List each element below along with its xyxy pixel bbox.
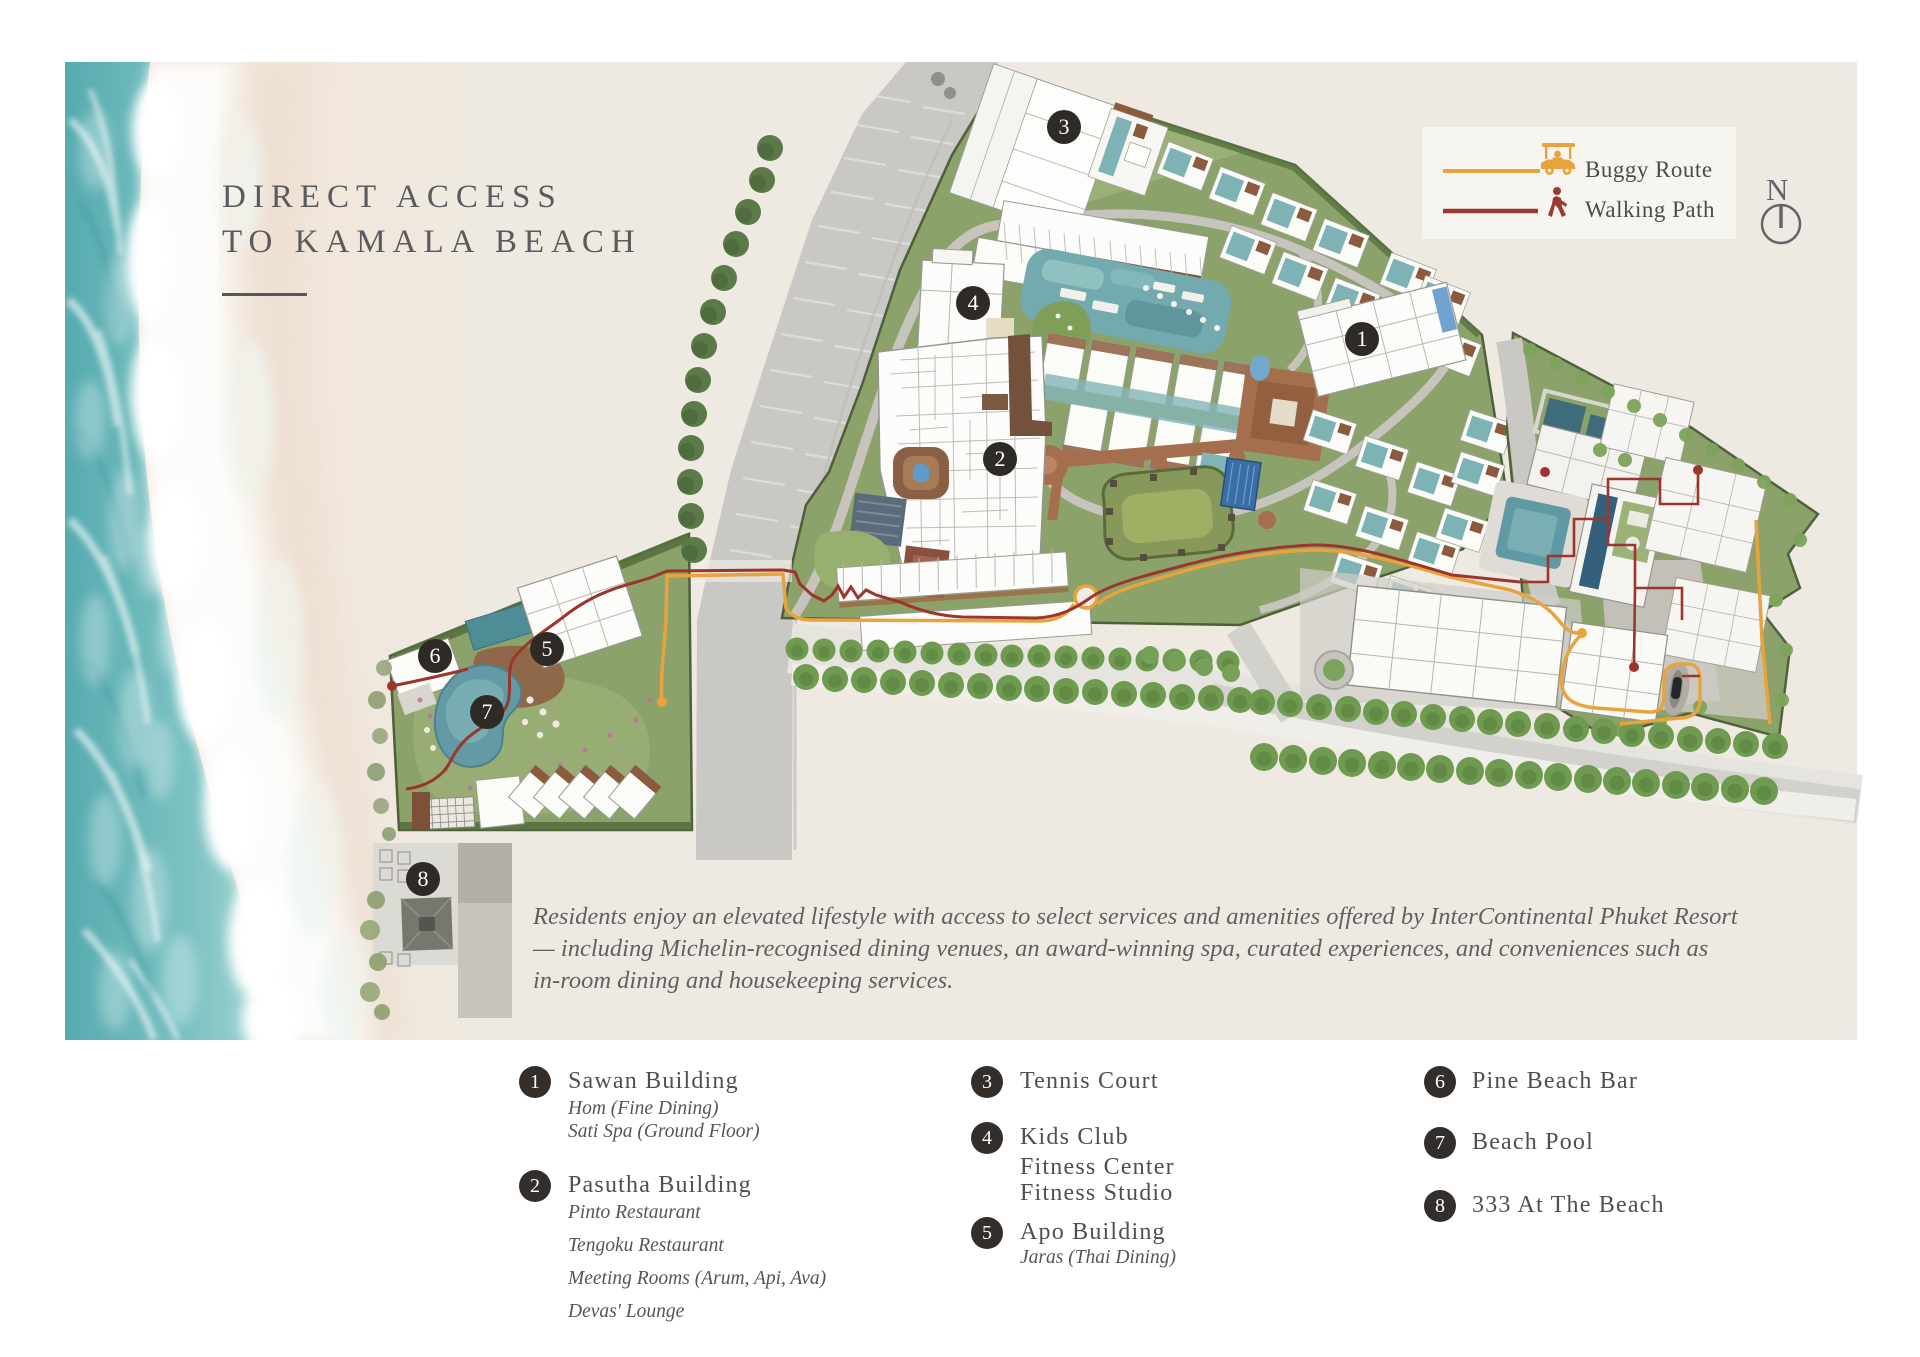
svg-text:5: 5	[542, 636, 553, 661]
svg-text:6: 6	[430, 643, 441, 668]
svg-text:8: 8	[418, 866, 429, 891]
svg-text:7: 7	[482, 699, 493, 724]
svg-text:2: 2	[995, 446, 1006, 471]
svg-text:3: 3	[1059, 114, 1070, 139]
svg-text:1: 1	[1357, 326, 1368, 351]
svg-text:4: 4	[968, 290, 979, 315]
